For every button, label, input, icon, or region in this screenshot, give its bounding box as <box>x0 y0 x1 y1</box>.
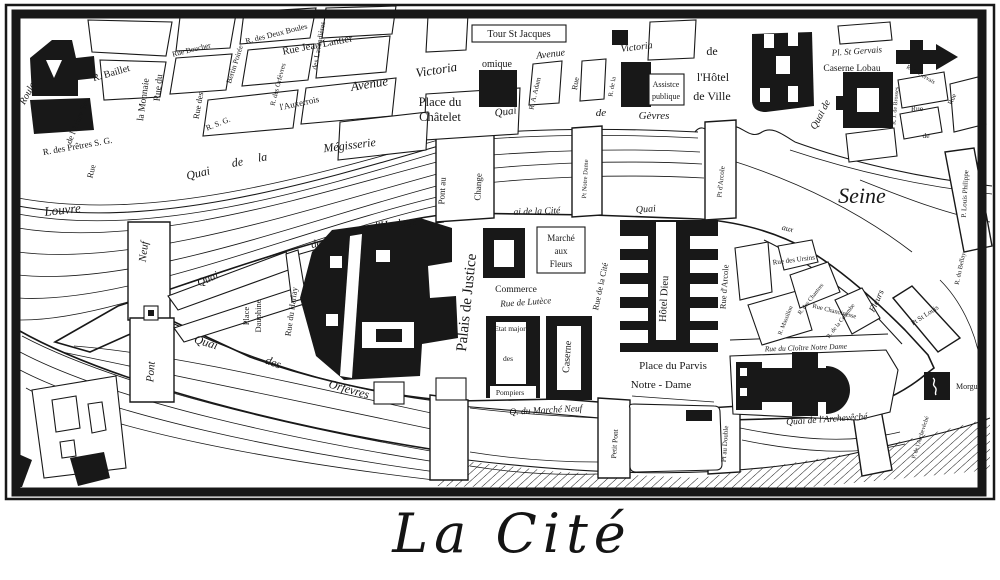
morgue-building <box>924 372 950 400</box>
label-quai-hd: Quai <box>635 203 656 215</box>
label-assistance-1: Assistce <box>653 80 680 89</box>
pont-st-michel <box>430 395 468 480</box>
label-hdv-1: de <box>706 44 717 58</box>
label-hdv-2: l'Hôtel <box>697 70 730 84</box>
label-marche-fleurs-3: Fleurs <box>550 259 573 269</box>
tribunal-de-commerce-building <box>483 228 525 278</box>
label-hdv-3: de Ville <box>693 89 730 103</box>
hotel-de-ville-building <box>752 32 814 112</box>
label-quai-cite: ai de la Cité <box>513 206 561 218</box>
label-pont-change-2: Change <box>472 173 483 201</box>
label-marche-fleurs-1: Marché <box>547 233 574 243</box>
label-place-dauphine-2: Dauphine <box>253 299 263 332</box>
label-place-chatelet-2: Châtelet <box>419 110 461 124</box>
label-pont-neuf-2: Pont <box>144 360 158 384</box>
la-cite-map: Roule R. Baillet de l'Arbre Sec Rue la M… <box>0 0 1000 580</box>
label-parvis-1: Place du Parvis <box>639 360 707 372</box>
caserne-lobau-building <box>836 72 893 128</box>
label-megisserie-3: la <box>257 149 268 164</box>
pont-neuf-south <box>130 318 174 402</box>
label-place-dauphine-1: Place <box>241 307 251 326</box>
label-omique: omique <box>482 59 513 70</box>
label-commerce: Commerce <box>495 285 537 295</box>
label-rue-c: Rue <box>911 104 924 113</box>
map-title: La Cité <box>391 502 631 565</box>
label-etat-major-1: Etat major <box>494 324 526 333</box>
theatre-building-west <box>479 70 517 107</box>
henri-iv-statue-marker <box>144 306 158 320</box>
label-quai-gevres-2: de <box>596 107 607 119</box>
label-place-chatelet-1: Place du <box>419 95 462 109</box>
label-parvis-2: Notre - Dame <box>631 379 692 391</box>
label-marche-fleurs-2: aux <box>555 246 568 256</box>
label-tour-st-jacques: Tour St Jacques <box>487 29 550 40</box>
label-quai-gevres-3: Gèvres <box>639 110 670 122</box>
theatre-building-east <box>621 62 651 107</box>
label-etat-major-3: Pompiers <box>496 388 524 397</box>
label-seine: Seine <box>838 183 886 208</box>
label-caserne-lobau: Caserne Lobau <box>823 64 880 74</box>
label-pont-change-1: Pont au <box>436 176 447 204</box>
label-pont-neuf-1: Neuf <box>137 239 151 264</box>
label-caserne: Caserne <box>561 340 574 373</box>
label-assistance-2: publique <box>652 92 680 101</box>
label-etat-major-2: des <box>503 354 513 363</box>
pont-neuf-north <box>128 222 170 320</box>
label-de-c: de <box>922 131 930 140</box>
map-page: Roule R. Baillet de l'Arbre Sec Rue la M… <box>0 0 1000 580</box>
